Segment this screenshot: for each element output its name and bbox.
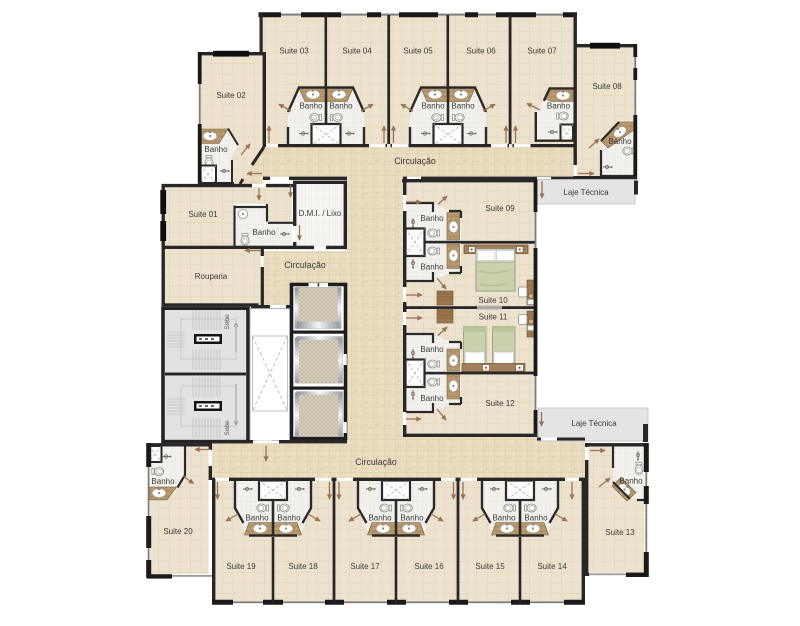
- svg-text:Banho: Banho: [204, 145, 228, 154]
- svg-text:Suite 06: Suite 06: [466, 47, 496, 56]
- svg-text:Suite 10: Suite 10: [478, 296, 508, 305]
- svg-text:Banho: Banho: [400, 514, 424, 523]
- svg-text:Circulação: Circulação: [355, 457, 397, 467]
- svg-text:Suite 14: Suite 14: [537, 562, 567, 571]
- svg-text:Suite 12: Suite 12: [485, 399, 515, 408]
- svg-text:Banho: Banho: [245, 514, 269, 523]
- svg-text:Banho: Banho: [368, 514, 392, 523]
- svg-text:Rouparia: Rouparia: [195, 272, 228, 281]
- svg-text:Suite 09: Suite 09: [485, 204, 515, 213]
- svg-text:Laje Técnica: Laje Técnica: [563, 188, 609, 197]
- svg-text:Banho: Banho: [420, 394, 444, 403]
- svg-text:Banho: Banho: [299, 102, 323, 111]
- svg-text:Suite 19: Suite 19: [226, 562, 256, 571]
- svg-text:D.M.I. / Lixo: D.M.I. / Lixo: [299, 209, 342, 218]
- svg-text:Suite 08: Suite 08: [592, 82, 622, 91]
- svg-text:Suite 13: Suite 13: [605, 528, 635, 537]
- svg-text:Suite 02: Suite 02: [216, 91, 246, 100]
- svg-text:Banho: Banho: [420, 214, 444, 223]
- svg-text:Banho: Banho: [277, 514, 301, 523]
- svg-text:Banho: Banho: [451, 102, 475, 111]
- svg-text:Sobe: Sobe: [224, 314, 231, 330]
- svg-text:Suite 01: Suite 01: [188, 210, 218, 219]
- svg-text:Banho: Banho: [420, 345, 444, 354]
- svg-text:Suite 17: Suite 17: [350, 562, 380, 571]
- svg-text:Suite 20: Suite 20: [163, 527, 193, 536]
- svg-text:Sobe: Sobe: [224, 420, 231, 436]
- svg-text:Banho: Banho: [420, 263, 444, 272]
- svg-text:Banho: Banho: [329, 102, 353, 111]
- svg-text:Suite 11: Suite 11: [479, 313, 508, 322]
- svg-text:Circulação: Circulação: [394, 156, 436, 166]
- svg-text:Banho: Banho: [252, 228, 276, 237]
- svg-text:Laje Técnica: Laje Técnica: [571, 419, 617, 428]
- svg-text:Suite 15: Suite 15: [475, 562, 505, 571]
- svg-text:Suite 18: Suite 18: [288, 562, 318, 571]
- svg-text:Banho: Banho: [608, 137, 632, 146]
- svg-text:Suite 04: Suite 04: [342, 47, 372, 56]
- svg-text:Circulação: Circulação: [284, 260, 326, 270]
- svg-text:Suite 05: Suite 05: [403, 47, 433, 56]
- svg-text:Suite 03: Suite 03: [279, 47, 309, 56]
- svg-text:Suite 07: Suite 07: [527, 47, 557, 56]
- svg-text:Banho: Banho: [547, 102, 571, 111]
- svg-text:Banho: Banho: [151, 477, 175, 486]
- svg-text:Banho: Banho: [421, 102, 445, 111]
- svg-text:Banho: Banho: [524, 514, 548, 523]
- svg-text:Suite 16: Suite 16: [414, 562, 444, 571]
- svg-text:Banho: Banho: [492, 514, 516, 523]
- svg-text:Banho: Banho: [619, 477, 643, 486]
